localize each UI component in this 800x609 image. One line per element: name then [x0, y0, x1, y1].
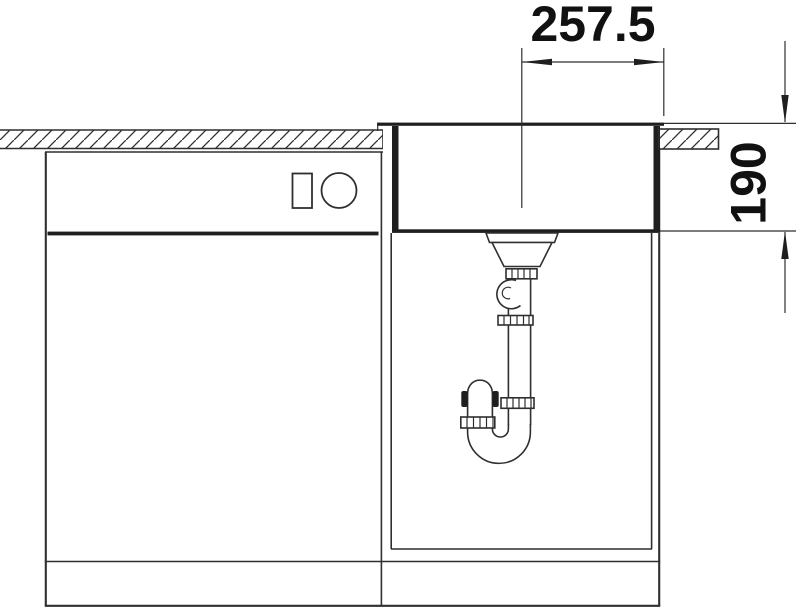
appliance-circle-symbol — [322, 173, 357, 208]
sink-bowl — [377, 123, 664, 233]
sink-installation-drawing: 257.5 190 — [0, 0, 800, 609]
appliance-rect-symbol — [293, 174, 313, 209]
pipe-nut-lower — [501, 398, 534, 409]
countertop-left-section — [0, 130, 383, 149]
strainer-nut — [506, 269, 537, 279]
overflow-elbow — [497, 280, 521, 309]
sink-rim — [377, 123, 664, 126]
trap-nut — [461, 417, 495, 428]
drawer-door-divider — [48, 232, 379, 236]
siphon-trap — [461, 380, 534, 463]
cabinet-plinth — [45, 562, 660, 606]
trap-wing-nut-right — [492, 391, 498, 407]
drain-pipe-upper — [497, 279, 533, 398]
base-cabinet-left — [45, 152, 391, 606]
dimension-depth: 190 — [660, 41, 796, 313]
pipe-nut-upper — [498, 316, 533, 326]
drawing-canvas: 257.5 190 — [0, 0, 800, 609]
countertop-right-section — [659, 129, 719, 149]
dimension-width: 257.5 — [522, 0, 664, 116]
width-dimension-label: 257.5 — [530, 0, 655, 52]
depth-dimension-label: 190 — [721, 141, 777, 224]
trap-dome-cap — [468, 380, 493, 394]
bowl-wall-left — [392, 126, 399, 232]
drain-strainer — [486, 233, 558, 279]
trap-wing-nut-left — [461, 391, 467, 407]
